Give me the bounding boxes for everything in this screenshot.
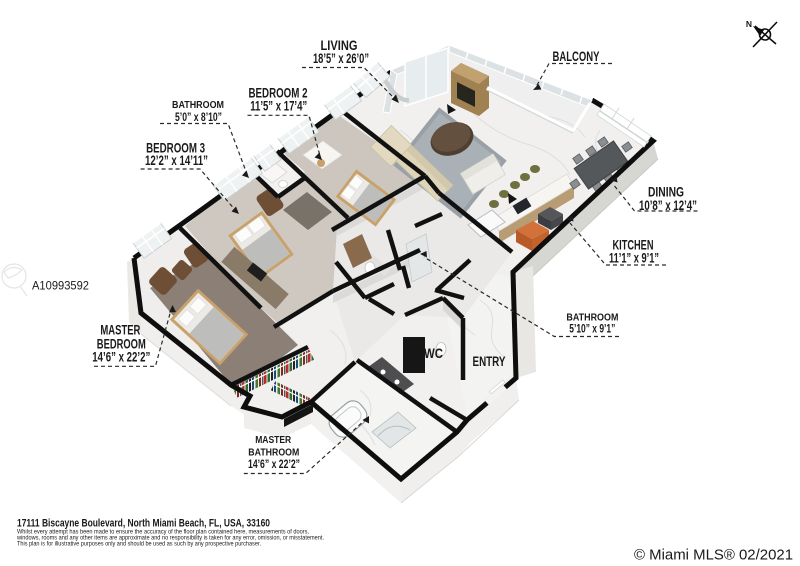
svg-text:MASTER: MASTER	[255, 434, 291, 446]
svg-text:ENTRY: ENTRY	[473, 354, 506, 369]
svg-text:This plan is for illustrative: This plan is for illustrative purposes o…	[17, 541, 261, 548]
svg-text:BATHROOM: BATHROOM	[248, 447, 299, 459]
svg-text:BALCONY: BALCONY	[553, 49, 600, 64]
svg-text:MASTER: MASTER	[100, 323, 140, 338]
svg-text:© Miami MLS® 02/2021: © Miami MLS® 02/2021	[634, 547, 793, 564]
svg-text:10’8” x 12’4”: 10’8” x 12’4”	[639, 198, 697, 213]
svg-text:11’1” x 9’1”: 11’1” x 9’1”	[609, 251, 659, 266]
svg-text:14’6” x 22’2”: 14’6” x 22’2”	[248, 459, 300, 471]
svg-text:A10993592: A10993592	[32, 281, 89, 293]
svg-text:12’2” x 14’11”: 12’2” x 14’11”	[145, 153, 208, 168]
svg-text:11’5” x 17’4”: 11’5” x 17’4”	[250, 99, 307, 114]
svg-text:18’5” x 26’0”: 18’5” x 26’0”	[313, 51, 369, 66]
svg-text:WC: WC	[424, 346, 443, 361]
svg-text:5’10” x 9’1”: 5’10” x 9’1”	[569, 322, 615, 336]
svg-text:5’0” x 8’10”: 5’0” x 8’10”	[175, 110, 222, 124]
svg-text:N: N	[746, 19, 752, 29]
svg-text:14’6” x 22’2”: 14’6” x 22’2”	[92, 350, 150, 365]
